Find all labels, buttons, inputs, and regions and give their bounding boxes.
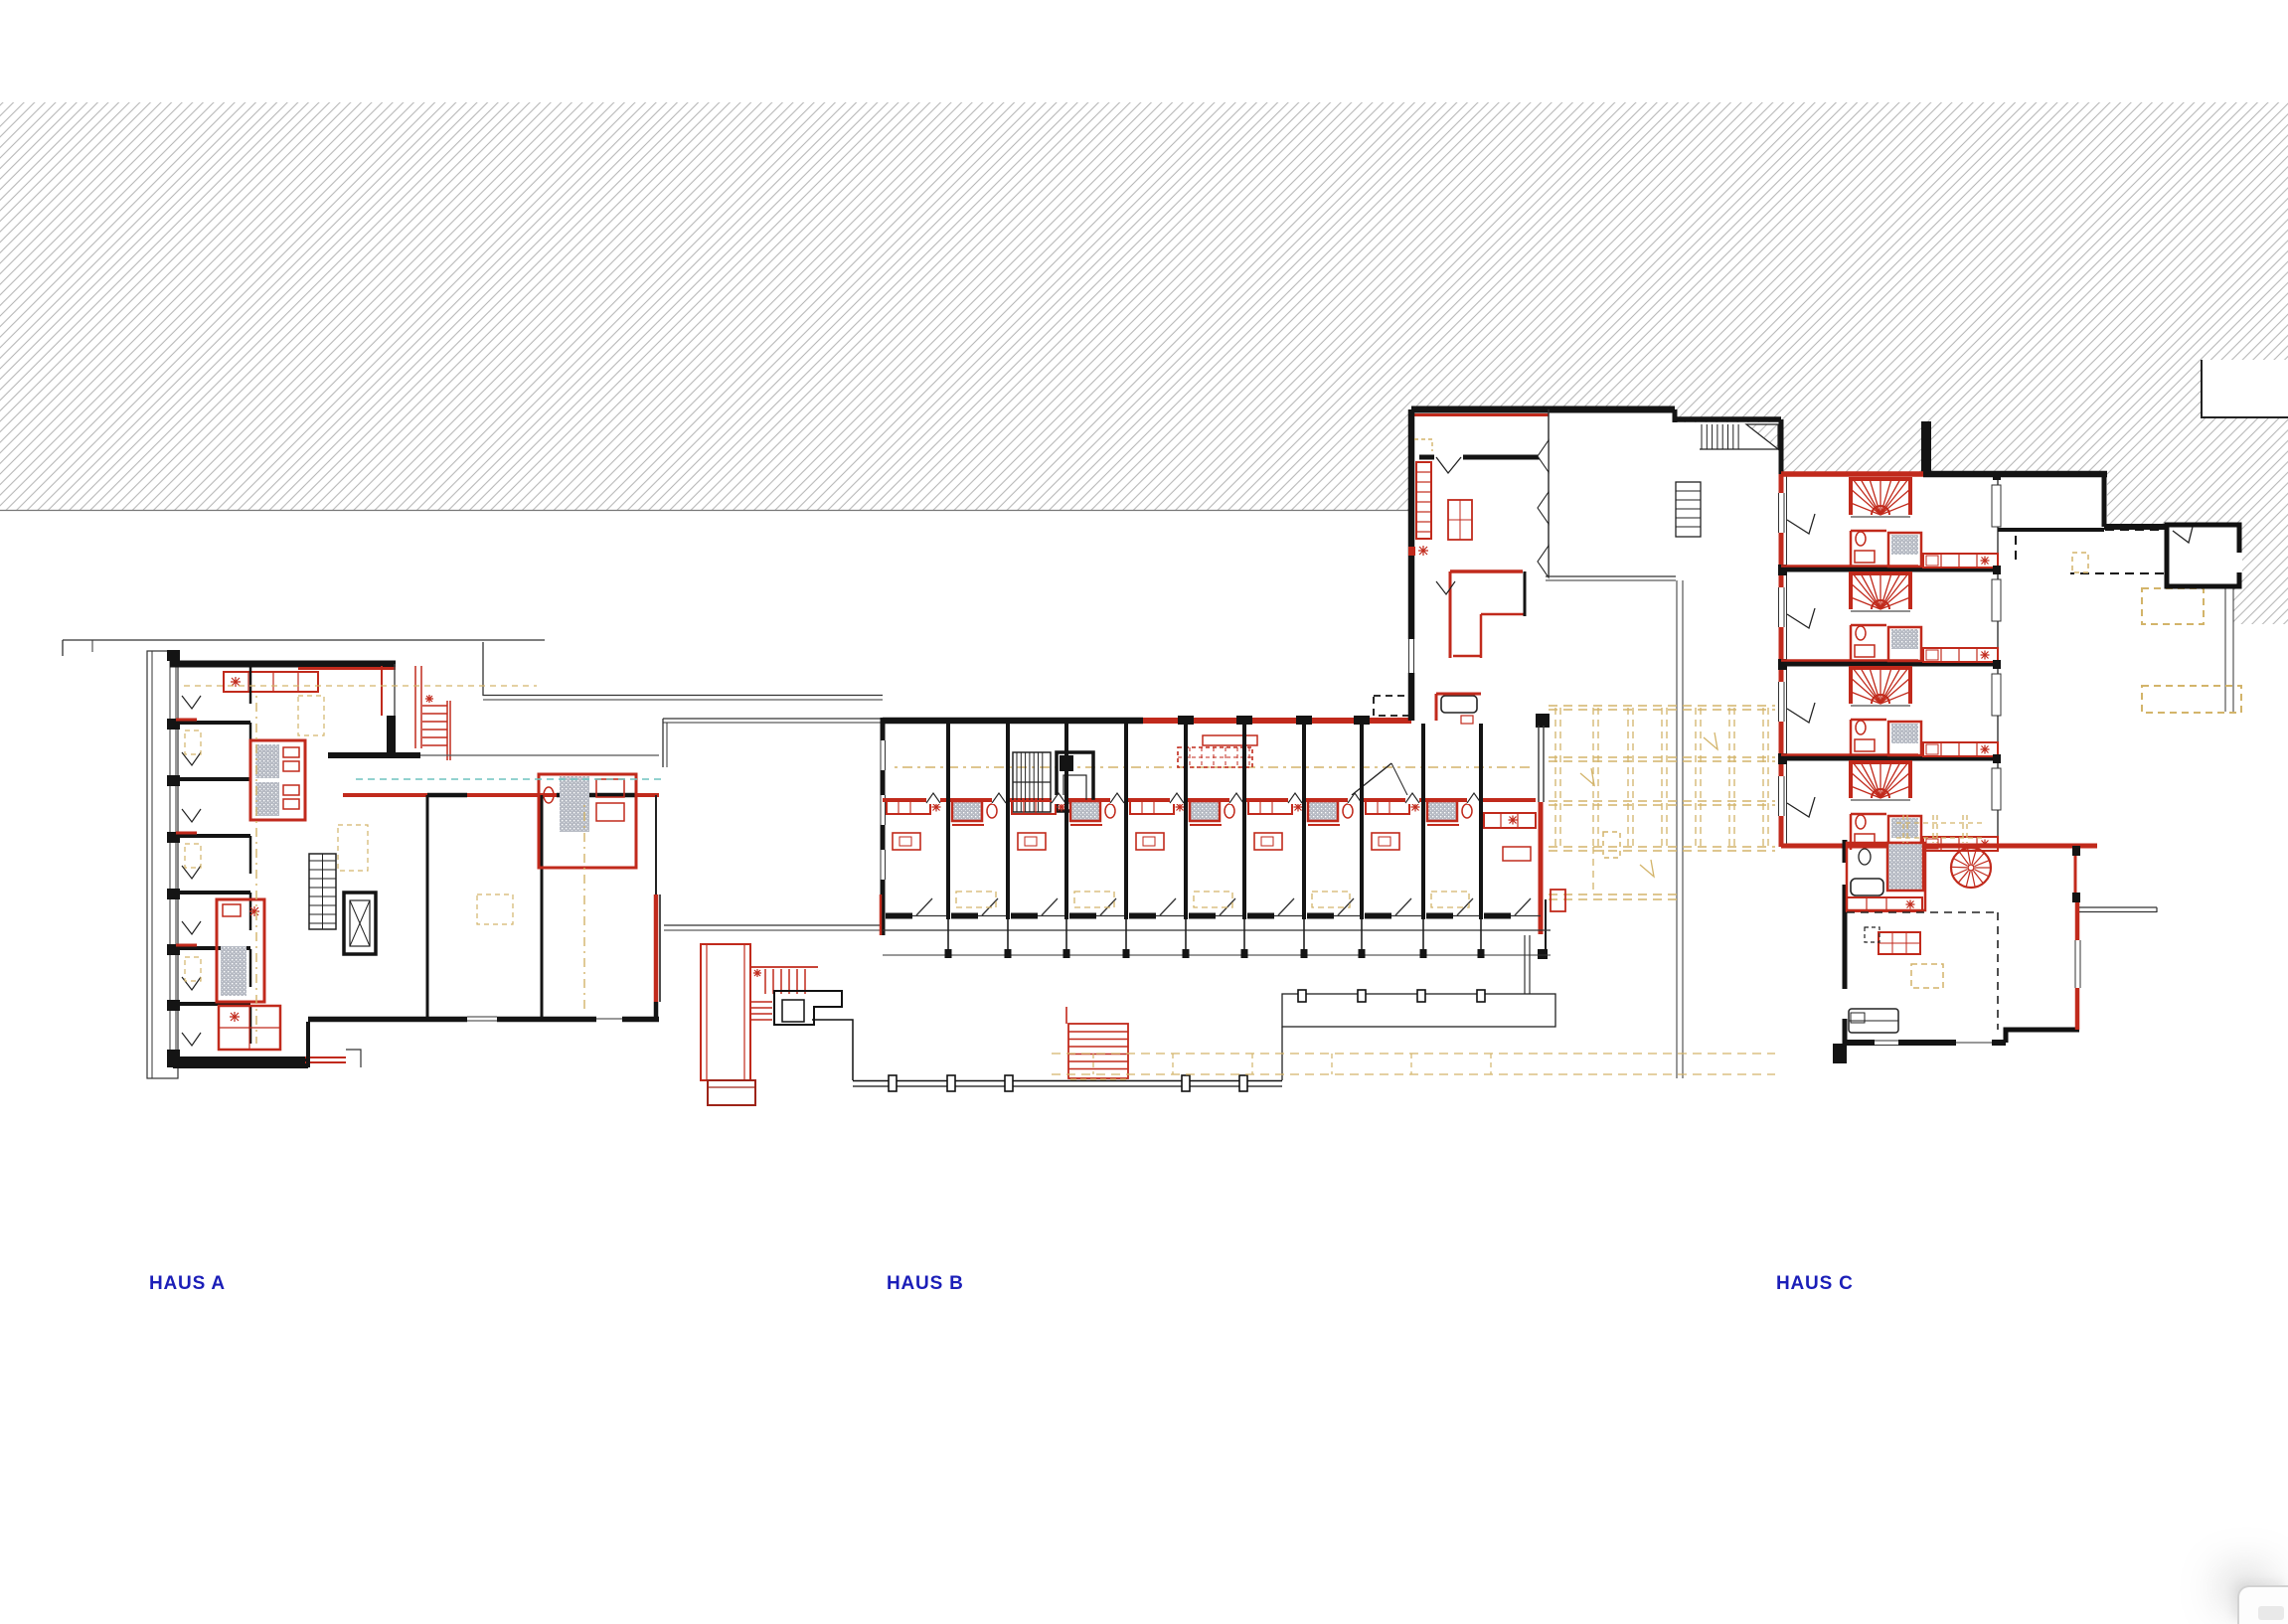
floating-corner-widget[interactable] [2237,1585,2288,1624]
walkway-and-ramp-between-a-b [663,719,1282,1105]
label-haus-c: HAUS C [1776,1273,1854,1294]
building-labels: HAUS A HAUS B HAUS C [149,1273,1854,1294]
building-haus-a [63,640,883,1078]
site-hatch-band [0,102,2288,624]
label-haus-b: HAUS B [887,1273,964,1294]
floor-plan-drawing: HAUS A HAUS B HAUS C [0,0,2288,1624]
building-haus-b [879,696,1555,1080]
lower-level-dashed-overlay [1052,706,1775,1074]
widget-chip [2258,1606,2284,1620]
floor-plan-canvas: HAUS A HAUS B HAUS C [0,0,2288,1624]
label-haus-a: HAUS A [149,1273,226,1294]
building-haus-c [1777,471,2242,1063]
